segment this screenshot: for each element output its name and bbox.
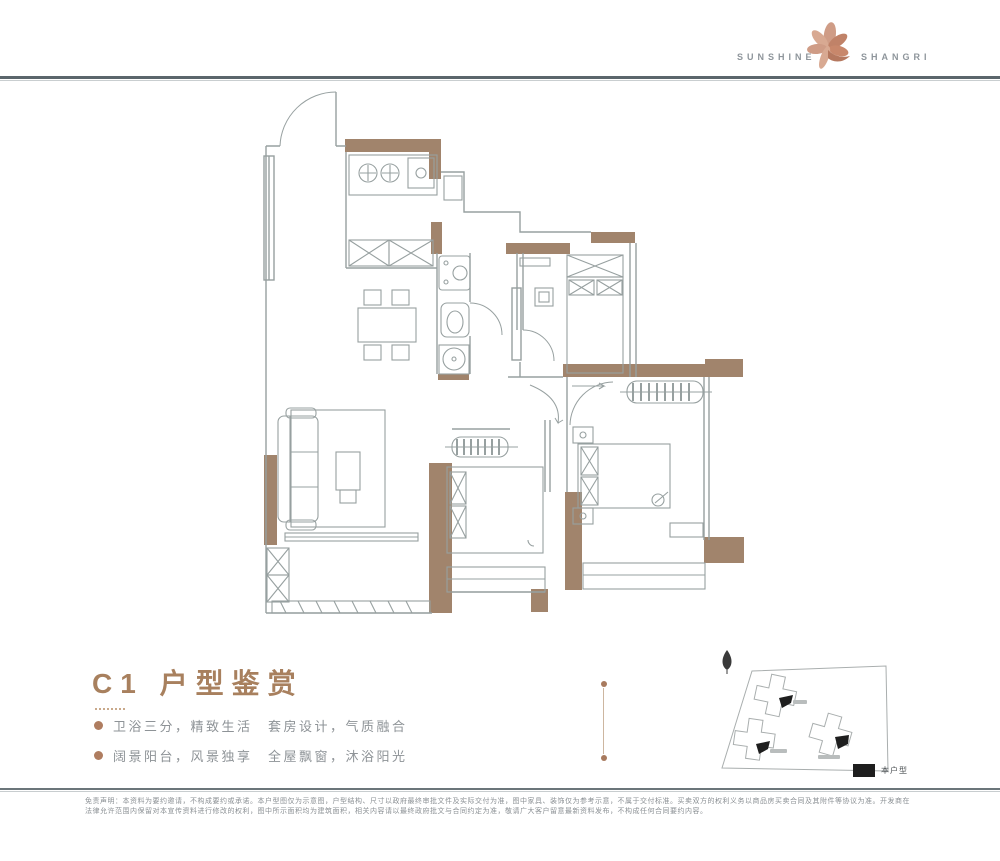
header-rule-light xyxy=(0,80,1000,81)
header-rule xyxy=(0,76,1000,79)
dining-table xyxy=(358,290,416,360)
walls xyxy=(264,146,709,613)
bullet-dot-icon xyxy=(94,751,103,760)
balcony xyxy=(267,533,430,613)
living-room xyxy=(278,408,385,530)
disclaimer-text: 免责声明：本资料为要约邀请，不构成要约或承诺。本户型图仅为示意图，户型结构、尺寸… xyxy=(85,797,917,817)
brand-text-right: SHANGRI xyxy=(861,52,931,62)
footer-rule-light xyxy=(0,791,1000,792)
floor-plan xyxy=(250,86,750,631)
footer-rule xyxy=(0,788,1000,790)
legend-swatch xyxy=(853,764,875,777)
north-arrow-icon xyxy=(723,650,732,674)
building-footprints xyxy=(732,672,856,762)
site-key-plan xyxy=(695,640,910,790)
divider-dot-bottom xyxy=(601,755,607,761)
bullet-dot-icon xyxy=(94,721,103,730)
bedroom-top-right xyxy=(520,255,623,373)
load-bearing-walls xyxy=(264,139,744,613)
page-title: C1 户型鉴赏 xyxy=(92,662,304,702)
site-boundary xyxy=(722,666,888,771)
brand-flower-icon xyxy=(798,18,858,76)
master-bedroom xyxy=(570,381,712,589)
feature-bullet-1: 卫浴三分，精致生活 套房设计，气质融合 xyxy=(94,715,514,735)
title-underline xyxy=(95,708,125,710)
divider-dot-top xyxy=(601,681,607,687)
entry-door-arc xyxy=(280,92,336,146)
legend-label: 本户型 xyxy=(881,765,908,776)
vertical-divider xyxy=(603,688,604,754)
feature-bullet-2: 阔景阳台，风景独享 全屋飘窗，沐浴阳光 xyxy=(94,745,514,765)
feature-bullet-2-label: 阔景阳台，风景独享 全屋飘窗，沐浴阳光 xyxy=(113,746,408,765)
feature-bullet-1-label: 卫浴三分，精致生活 套房设计，气质融合 xyxy=(113,716,408,735)
